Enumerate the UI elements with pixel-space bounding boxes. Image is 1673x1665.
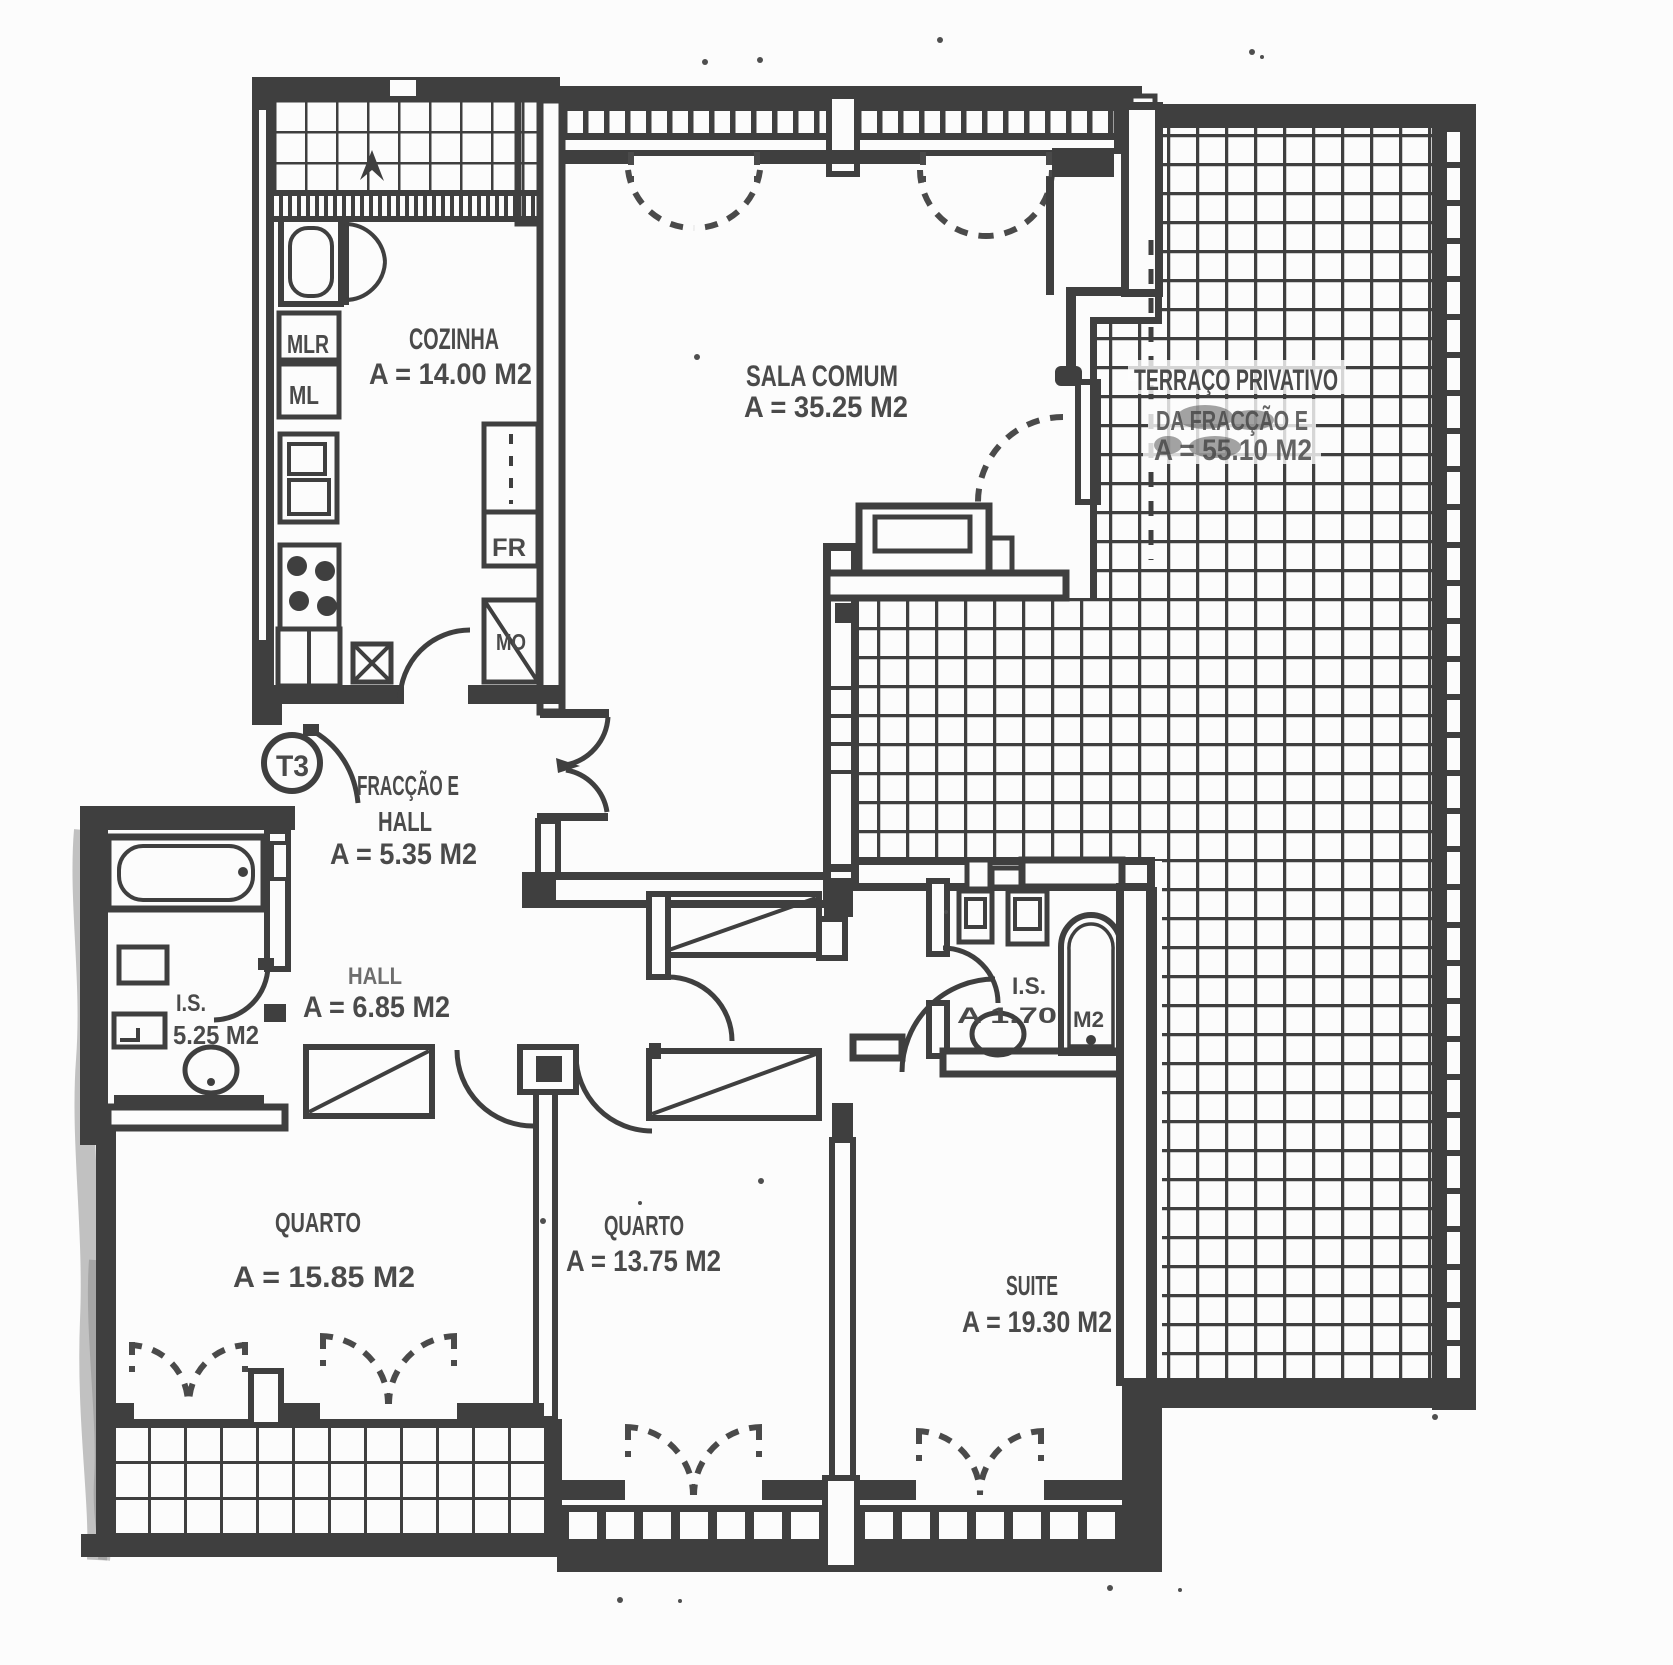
svg-text:A 1.70: A 1.70: [957, 1003, 1057, 1028]
svg-text:QUARTO: QUARTO: [275, 1207, 361, 1238]
svg-text:M2: M2: [1073, 1007, 1104, 1032]
svg-text:5.25 M2: 5.25 M2: [173, 1020, 259, 1050]
svg-text:QUARTO: QUARTO: [604, 1210, 684, 1241]
svg-text:FR: FR: [492, 534, 526, 562]
svg-text:A = 19.30 M2: A = 19.30 M2: [962, 1306, 1112, 1339]
svg-text:TERRAÇO PRIVATIVO: TERRAÇO PRIVATIVO: [1134, 364, 1338, 397]
svg-text:MLR: MLR: [287, 329, 329, 359]
svg-text:A = 35.25 M2: A = 35.25 M2: [744, 391, 908, 424]
svg-text:ML: ML: [289, 380, 319, 410]
svg-text:FRACÇÃO E: FRACÇÃO E: [357, 770, 459, 801]
svg-text:A = 13.75 M2: A = 13.75 M2: [566, 1245, 721, 1278]
svg-text:A = 14.00 M2: A = 14.00 M2: [369, 358, 532, 391]
svg-text:T3: T3: [276, 750, 309, 783]
svg-text:SALA COMUM: SALA COMUM: [746, 360, 898, 393]
svg-text:I.S.: I.S.: [176, 990, 206, 1017]
svg-text:HALL: HALL: [378, 806, 432, 837]
svg-text:A = 15.85 M2: A = 15.85 M2: [233, 1261, 415, 1294]
svg-text:I.S.: I.S.: [1012, 973, 1046, 1000]
svg-text:SUITE: SUITE: [1006, 1270, 1058, 1301]
svg-text:A = 6.85 M2: A = 6.85 M2: [303, 991, 450, 1024]
svg-text:COZINHA: COZINHA: [409, 323, 499, 356]
svg-text:A = 5.35 M2: A = 5.35 M2: [330, 838, 477, 871]
svg-text:HALL: HALL: [348, 963, 402, 990]
svg-text:MO: MO: [496, 629, 526, 655]
